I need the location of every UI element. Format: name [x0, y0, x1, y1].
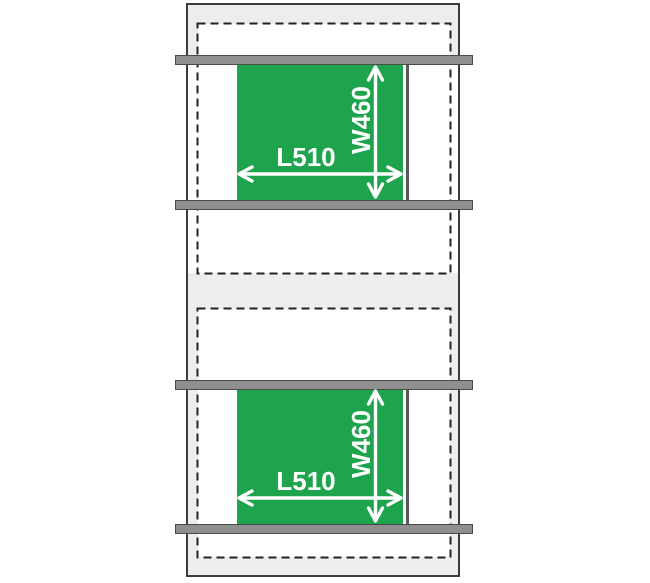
shelf-dimension-diagram: L510 W460 L510 W460 — [0, 0, 650, 583]
shelf-edge-line-top — [406, 64, 409, 200]
shelf-rail-2 — [175, 200, 473, 210]
width-dimension-label-bottom: W460 — [348, 410, 374, 478]
length-dimension-label-top: L510 — [276, 144, 335, 170]
width-dimension-label-top: W460 — [348, 86, 374, 154]
shelf-mat-top — [237, 64, 403, 200]
upper-compartment-top-strip — [198, 24, 450, 56]
shelf-rail-1 — [175, 55, 473, 65]
shelf-rail-3 — [175, 380, 473, 390]
shelf-edge-line-bottom — [406, 389, 409, 524]
length-dimension-label-bottom: L510 — [276, 468, 335, 494]
shelf-mat-bottom — [237, 389, 403, 524]
shelf-rail-4 — [175, 524, 473, 534]
